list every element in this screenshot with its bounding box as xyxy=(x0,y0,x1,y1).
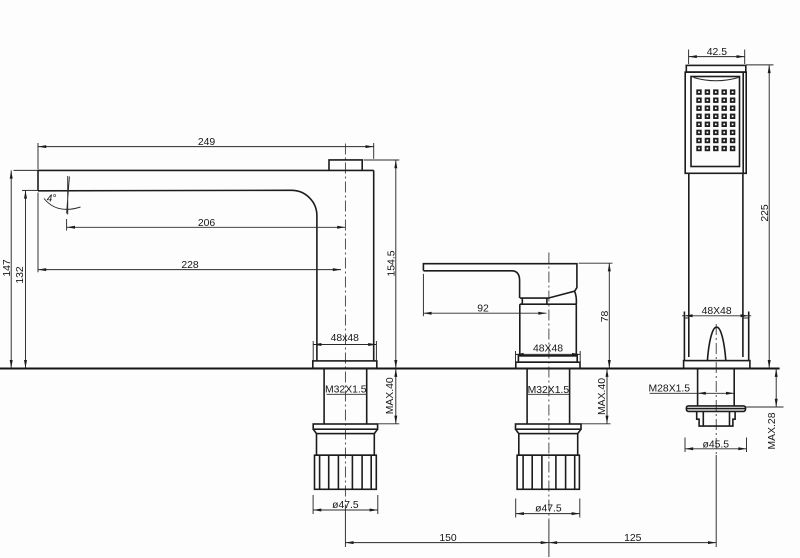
svg-text:MAX.28: MAX.28 xyxy=(767,412,778,449)
svg-text:132: 132 xyxy=(15,266,26,284)
svg-text:206: 206 xyxy=(198,218,216,229)
svg-text:147: 147 xyxy=(2,259,13,277)
svg-text:48X48: 48X48 xyxy=(702,306,732,317)
svg-text:MAX.40: MAX.40 xyxy=(597,378,608,415)
svg-text:ø45.5: ø45.5 xyxy=(703,439,730,450)
svg-text:42.5: 42.5 xyxy=(707,47,727,58)
svg-text:125: 125 xyxy=(624,533,642,544)
svg-text:228: 228 xyxy=(181,260,199,271)
svg-text:48x48: 48x48 xyxy=(331,333,360,344)
svg-text:154.5: 154.5 xyxy=(386,250,397,276)
svg-text:225: 225 xyxy=(760,204,771,222)
svg-text:4°: 4° xyxy=(47,194,57,205)
svg-text:ø47.5: ø47.5 xyxy=(535,503,562,514)
svg-text:78: 78 xyxy=(600,311,611,323)
svg-text:92: 92 xyxy=(477,304,489,315)
svg-text:249: 249 xyxy=(198,137,216,148)
svg-text:48X48: 48X48 xyxy=(533,344,563,355)
svg-text:MAX.40: MAX.40 xyxy=(385,377,396,414)
svg-text:ø47.5: ø47.5 xyxy=(332,500,359,511)
svg-text:150: 150 xyxy=(439,533,457,544)
